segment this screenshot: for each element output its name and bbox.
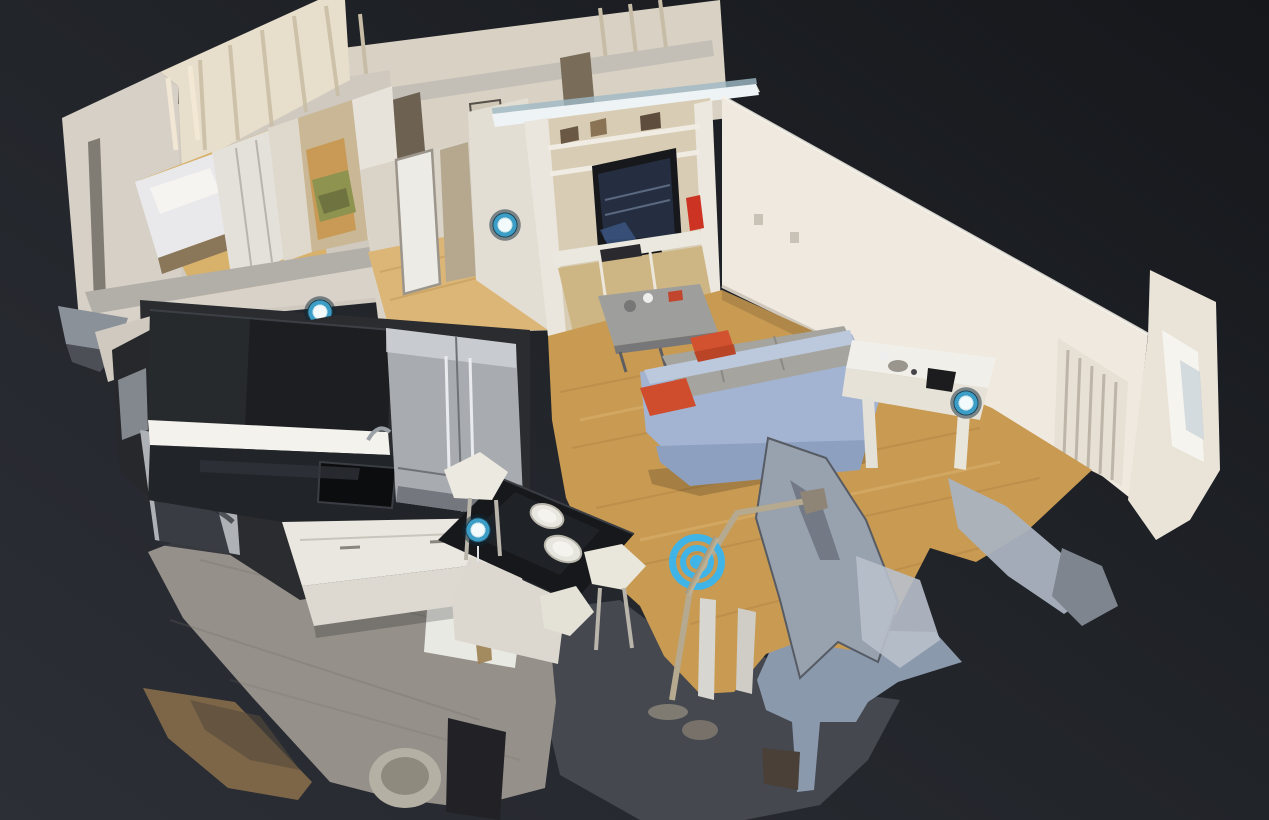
waypoint-marker-kitchen-island[interactable] [461,513,495,547]
waypoint-marker-hallway[interactable] [488,208,522,242]
viewer-canvas[interactable] [0,0,1269,820]
mirror [396,150,440,294]
dollhouse-model[interactable] [0,0,1269,820]
waypoint-marker-living-room[interactable] [949,386,983,420]
